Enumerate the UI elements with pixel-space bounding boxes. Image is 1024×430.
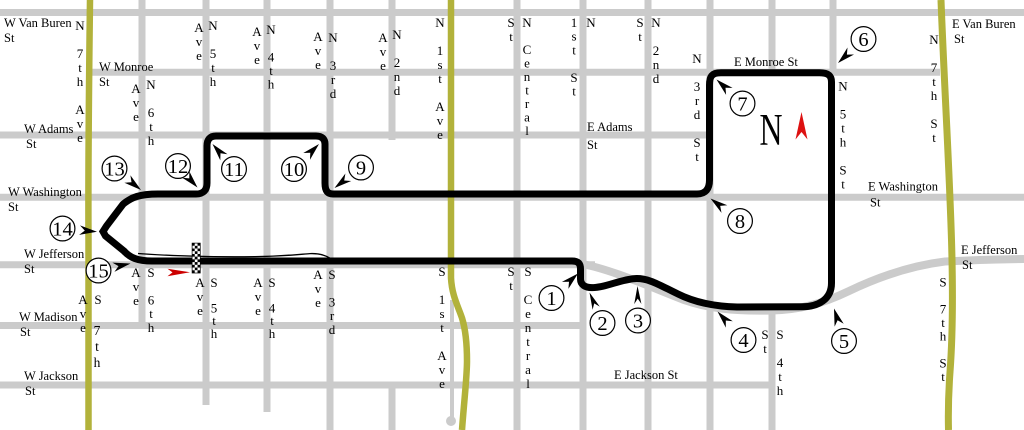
svg-text:E Van Buren: E Van Buren (952, 17, 1016, 31)
svg-text:13: 13 (104, 158, 125, 180)
svg-text:W Adams: W Adams (24, 122, 74, 136)
svg-text:S5th: S5th (210, 275, 217, 341)
svg-text:St: St (24, 262, 35, 276)
svg-text:4: 4 (738, 330, 748, 352)
svg-text:6: 6 (858, 29, 868, 51)
svg-text:St: St (4, 31, 15, 45)
svg-text:8: 8 (735, 211, 745, 233)
svg-text:S: S (94, 292, 101, 307)
svg-text:11: 11 (224, 159, 244, 181)
svg-text:3: 3 (633, 310, 643, 332)
svg-text:St: St (25, 384, 36, 398)
svg-text:15: 15 (88, 260, 109, 282)
svg-text:St: St (26, 137, 37, 151)
svg-text:St: St (587, 138, 598, 152)
svg-text:E Jefferson: E Jefferson (961, 243, 1018, 257)
svg-text:St: St (8, 200, 19, 214)
svg-text:S4th: S4th (268, 275, 275, 341)
svg-text:N: N (586, 15, 596, 30)
svg-text:St: St (954, 32, 965, 46)
svg-text:E Adams: E Adams (587, 120, 633, 134)
svg-text:1: 1 (546, 288, 556, 310)
svg-text:E Jackson St: E Jackson St (614, 368, 678, 382)
svg-text:St: St (20, 325, 31, 339)
svg-text:W Madison: W Madison (19, 310, 78, 324)
svg-text:S6th: S6th (147, 265, 154, 335)
svg-text:N: N (760, 105, 783, 155)
svg-text:W Van Buren: W Van Buren (4, 16, 72, 30)
svg-text:14: 14 (52, 218, 73, 240)
svg-text:St: St (99, 75, 110, 89)
svg-text:2: 2 (597, 313, 607, 335)
svg-text:12: 12 (168, 156, 189, 178)
svg-text:7: 7 (737, 93, 747, 115)
svg-text:E Monroe St: E Monroe St (734, 55, 798, 69)
svg-text:St: St (962, 258, 973, 272)
svg-text:W Washington: W Washington (8, 185, 83, 199)
svg-text:E Washington: E Washington (868, 180, 939, 194)
svg-text:St: St (870, 196, 881, 210)
svg-text:W Jackson: W Jackson (24, 369, 79, 383)
svg-text:W Jefferson: W Jefferson (24, 247, 85, 261)
svg-text:9: 9 (356, 157, 366, 179)
svg-text:W Monroe: W Monroe (99, 60, 154, 74)
svg-text:10: 10 (284, 159, 305, 181)
svg-text:S3rd: S3rd (328, 267, 335, 337)
svg-text:S4th: S4th (776, 327, 783, 398)
svg-text:5: 5 (839, 331, 849, 353)
